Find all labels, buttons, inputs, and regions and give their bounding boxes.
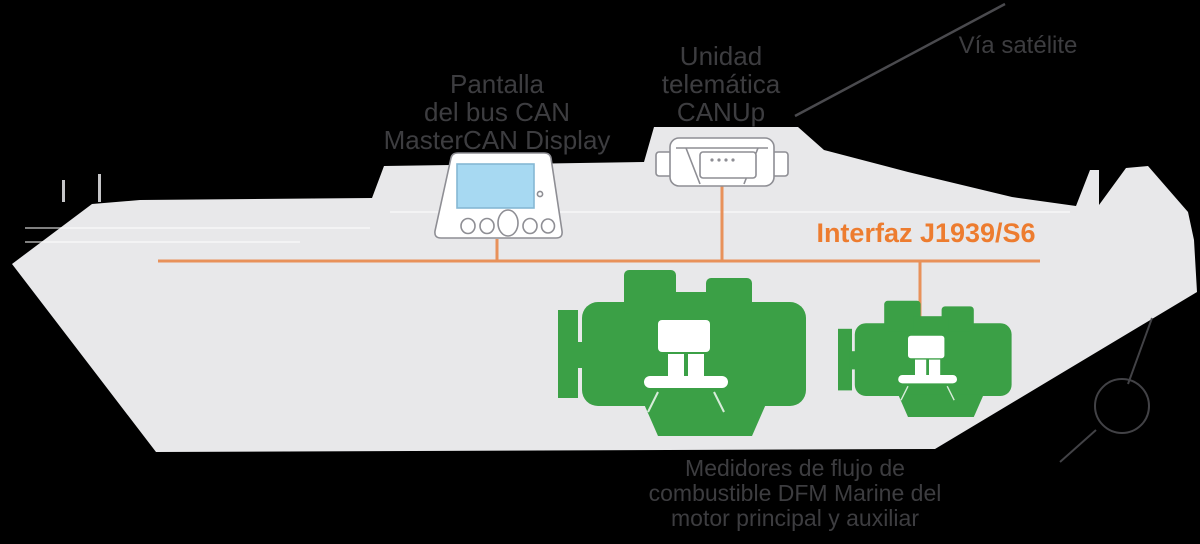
interface-label: Interfaz J1939/S6 — [816, 218, 1035, 248]
display-label: Pantalla del bus CAN MasterCAN Display — [384, 70, 611, 154]
label-line: CANUp — [662, 98, 781, 126]
label-line: telemática — [662, 70, 781, 98]
canup-gateway-icon — [656, 138, 788, 186]
satellite-label: Vía satélite — [959, 33, 1078, 59]
mastercan-display-icon — [435, 153, 562, 238]
telematics-label: Unidad telemática CANUp — [662, 42, 781, 126]
label-line: Pantalla — [384, 70, 611, 98]
label-line: Medidores de flujo de — [649, 456, 942, 481]
label-line: motor principal y auxiliar — [649, 506, 942, 531]
label-line: MasterCAN Display — [384, 126, 611, 154]
flow-meters-label: Medidores de flujo de combustible DFM Ma… — [649, 456, 942, 531]
label-line: Unidad — [662, 42, 781, 70]
bow-mast-icon — [62, 174, 101, 202]
label-line: del bus CAN — [384, 98, 611, 126]
diagram-canvas: Pantalla del bus CAN MasterCAN Display U… — [0, 0, 1200, 544]
label-line: combustible DFM Marine del — [649, 481, 942, 506]
antenna-link-line — [795, 4, 1005, 116]
